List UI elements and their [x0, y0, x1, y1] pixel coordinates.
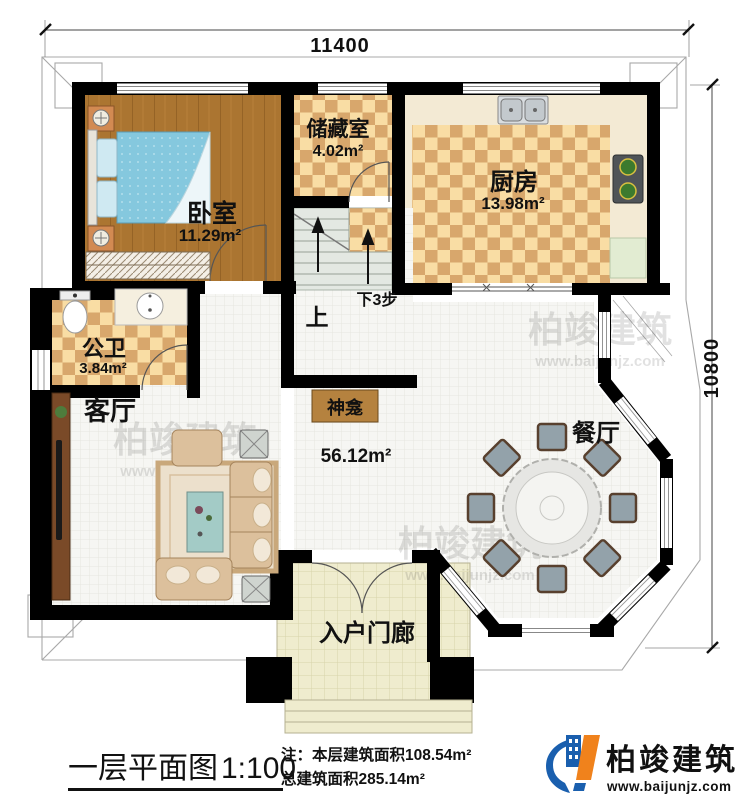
plant-stand	[242, 576, 270, 602]
wall	[281, 375, 417, 388]
wall	[647, 82, 660, 295]
cutting-board	[610, 238, 646, 278]
wall	[572, 283, 670, 295]
brand-name: 柏竣建筑	[606, 743, 738, 777]
title-underline	[68, 788, 283, 791]
pillow	[97, 139, 117, 177]
window	[599, 312, 610, 358]
watermark-url: www.baijunjz.com	[404, 567, 534, 584]
kitchen-label: 厨房	[490, 168, 538, 196]
plan-title: 一层平面图1:100	[68, 752, 296, 785]
wardrobe	[86, 252, 210, 279]
porch-steps	[285, 700, 472, 733]
storage-area: 4.02m²	[313, 143, 364, 160]
shrine-label: 神龛	[327, 397, 364, 418]
window	[117, 84, 248, 94]
wall	[30, 288, 52, 620]
footer-note-line2: 总建筑面积285.14m²	[281, 769, 425, 788]
wall	[283, 550, 312, 563]
stairs-up-label: 上	[306, 304, 329, 330]
coffee-table	[187, 492, 223, 552]
wall	[246, 657, 292, 703]
staircase	[294, 208, 392, 290]
wall	[392, 82, 405, 295]
tv-icon	[56, 440, 62, 540]
floor-plan-image: 柏竣建筑 www.baijunjz.com 柏竣建筑 www.baijunjz.…	[0, 0, 750, 801]
plant-stand	[240, 430, 268, 458]
plant-icon	[55, 406, 67, 418]
dining-set	[468, 424, 636, 592]
window	[463, 84, 600, 94]
storage-label: 储藏室	[307, 117, 370, 141]
bathroom-label: 公卫	[82, 336, 126, 361]
window	[318, 84, 387, 94]
living-label: 客厅	[84, 396, 136, 426]
footer-note-line1: 注：本层建筑面积108.54m²	[281, 745, 471, 764]
window	[32, 350, 50, 390]
tv-cabinet	[52, 393, 70, 600]
dining-table	[503, 459, 601, 557]
kitchen-area: 13.98m²	[481, 194, 545, 213]
bedroom-area: 11.29m²	[179, 226, 242, 245]
brand-website: www.baijunjz.com	[606, 779, 732, 794]
wall	[187, 288, 200, 398]
bathroom-sink-icon	[115, 289, 187, 325]
armchair	[172, 430, 222, 466]
window	[522, 625, 590, 636]
stairs-down-label: 下3步	[357, 290, 398, 309]
wall	[430, 657, 474, 703]
wall	[405, 283, 452, 295]
porch-label: 入户门廊	[319, 619, 415, 647]
wall	[281, 82, 294, 388]
wall	[281, 196, 349, 208]
window	[661, 478, 672, 548]
stove-icon	[613, 155, 643, 203]
bathroom-area: 3.84m²	[79, 360, 127, 377]
kitchen-sink-icon	[498, 96, 548, 124]
bedroom-label: 卧室	[187, 199, 237, 228]
pillow	[97, 181, 117, 217]
floor-plan-page: 柏竣建筑 www.baijunjz.com 柏竣建筑 www.baijunjz.…	[0, 0, 750, 801]
wall	[590, 624, 614, 637]
height-dimension-label: 10800	[701, 338, 723, 399]
living-area: 56.12m²	[321, 446, 392, 467]
dining-label: 餐厅	[572, 420, 620, 447]
wall	[72, 82, 85, 300]
width-dimension-label: 11400	[310, 35, 370, 57]
wall	[30, 605, 285, 620]
wall	[263, 281, 296, 294]
